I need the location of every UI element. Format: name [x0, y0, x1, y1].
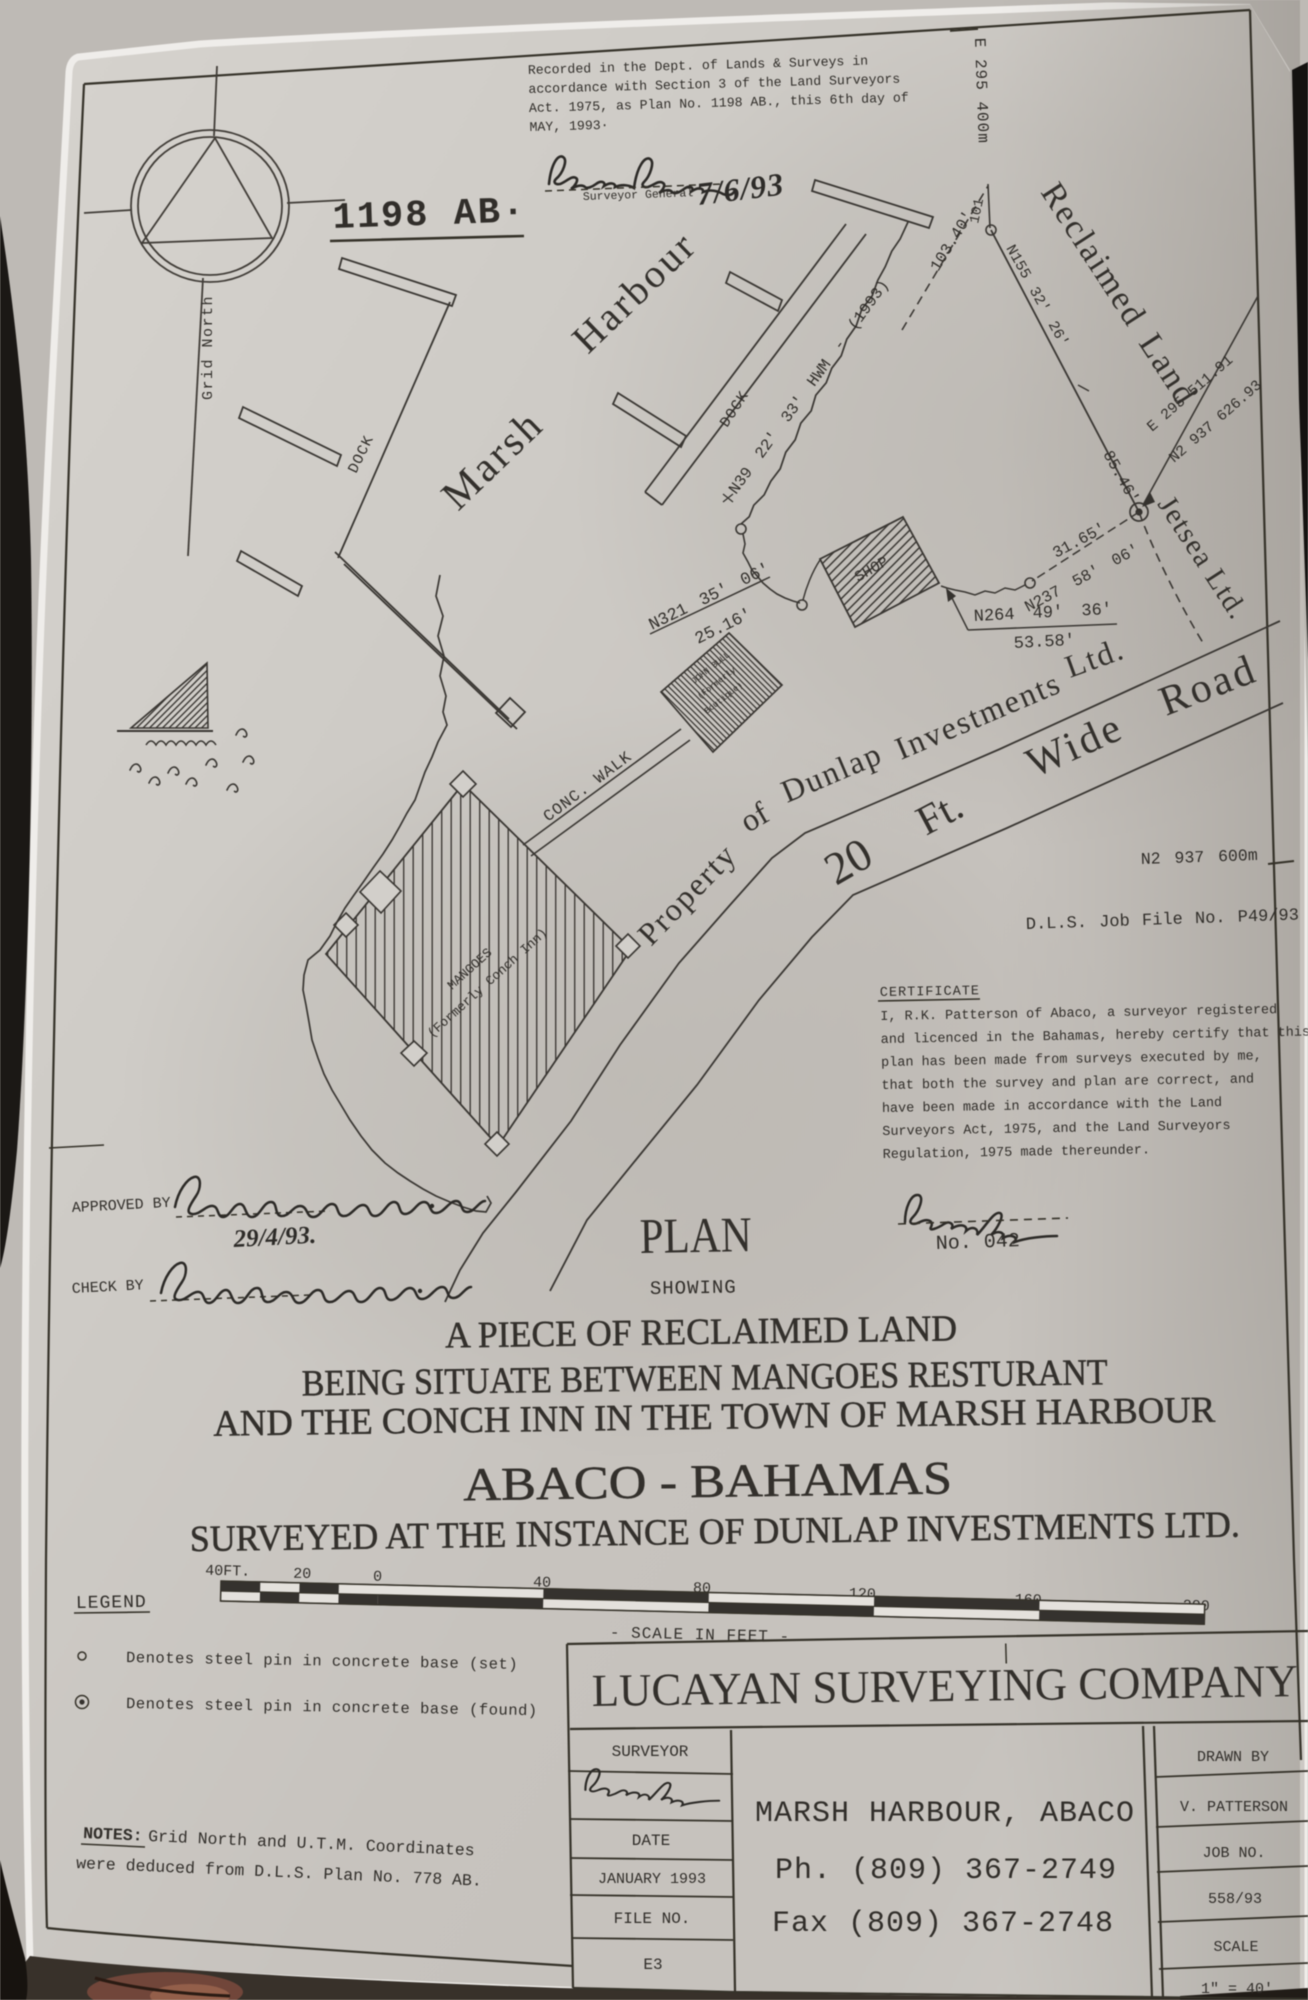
- svg-text:SHOWING: SHOWING: [650, 1276, 737, 1300]
- svg-text:No. 042: No. 042: [935, 1230, 1020, 1256]
- svg-text:1" = 40': 1" = 40': [1201, 1981, 1273, 1998]
- svg-text:SCALE: SCALE: [1213, 1939, 1258, 1956]
- svg-text:MARSH HARBOUR, ABACO: MARSH HARBOUR, ABACO: [755, 1797, 1135, 1831]
- svg-text:A PIECE OF RECLAIMED LAND: A PIECE OF RECLAIMED LAND: [445, 1308, 958, 1356]
- svg-text:E 295 400m: E 295 400m: [970, 38, 992, 145]
- svg-text:ABACO - BAHAMAS: ABACO - BAHAMAS: [463, 1452, 953, 1511]
- svg-text:SURVEYOR: SURVEYOR: [612, 1743, 689, 1761]
- svg-text:LUCAYAN SURVEYING COMPANY: LUCAYAN SURVEYING COMPANY: [591, 1655, 1298, 1716]
- svg-text:MAY, 1993·: MAY, 1993·: [529, 118, 609, 135]
- svg-text:JOB NO.: JOB NO.: [1202, 1845, 1265, 1862]
- svg-text:DATE: DATE: [632, 1832, 670, 1850]
- svg-text:JANUARY 1993: JANUARY 1993: [598, 1871, 706, 1888]
- svg-text:LEGEND: LEGEND: [76, 1593, 147, 1614]
- svg-text:Fax (809) 367-2748: Fax (809) 367-2748: [772, 1907, 1114, 1941]
- svg-text:PLAN: PLAN: [639, 1206, 752, 1264]
- svg-text:0: 0: [373, 1569, 382, 1586]
- svg-text:E3: E3: [643, 1956, 662, 1974]
- svg-text:DRAWN BY: DRAWN BY: [1197, 1749, 1269, 1766]
- svg-text:1198 AB·: 1198 AB·: [332, 191, 527, 240]
- svg-text:NOTES:: NOTES:: [83, 1824, 143, 1846]
- svg-text:20: 20: [293, 1566, 311, 1583]
- svg-text:Ph. (809) 367-2749: Ph. (809) 367-2749: [775, 1854, 1117, 1888]
- svg-text:FILE NO.: FILE NO.: [614, 1910, 691, 1928]
- svg-text:V. PATTERSON: V. PATTERSON: [1180, 1799, 1288, 1816]
- svg-text:558/93: 558/93: [1208, 1891, 1262, 1908]
- svg-text:40FT.: 40FT.: [205, 1563, 250, 1581]
- svg-text:CERTIFICATE: CERTIFICATE: [880, 984, 980, 1001]
- svg-text:Grid North: Grid North: [200, 295, 217, 400]
- svg-text:29/4/93.: 29/4/93.: [232, 1222, 317, 1253]
